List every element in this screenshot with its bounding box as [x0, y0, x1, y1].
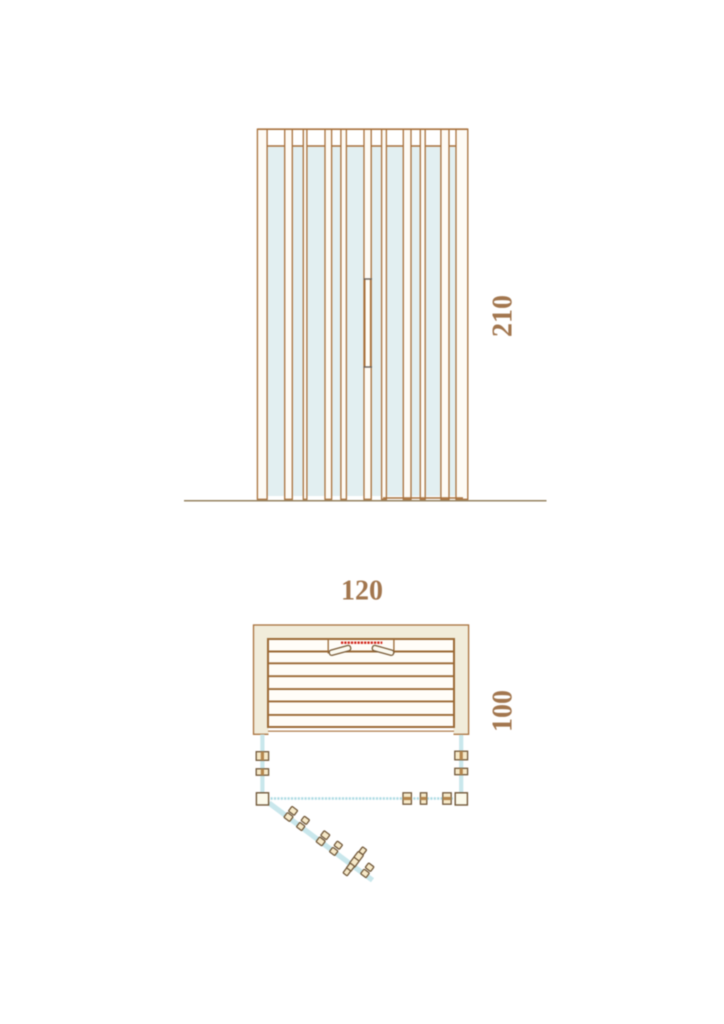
svg-text:210: 210 — [488, 295, 519, 337]
svg-text:100: 100 — [488, 690, 519, 732]
svg-text:120: 120 — [341, 576, 383, 607]
